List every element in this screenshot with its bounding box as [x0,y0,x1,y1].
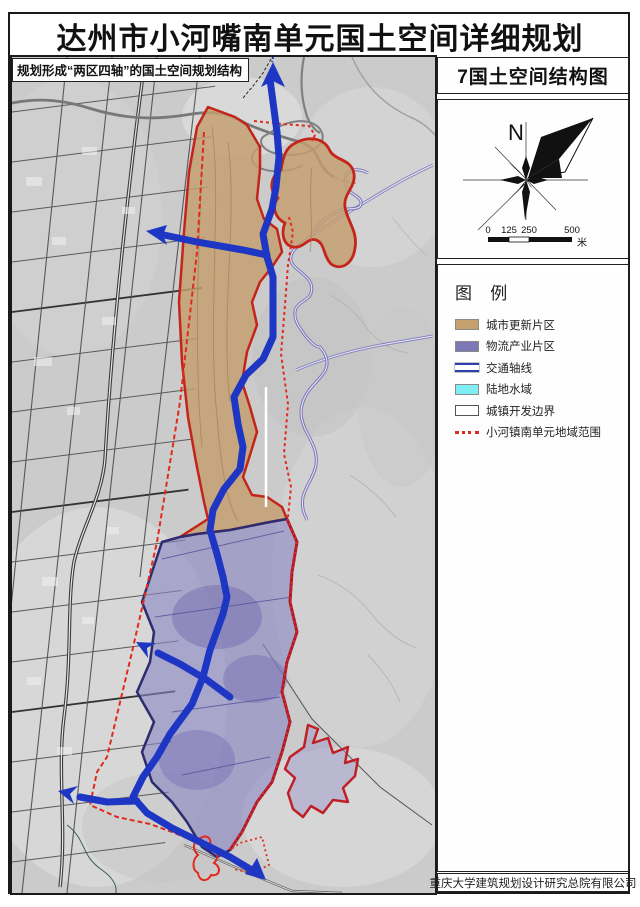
svg-text:125: 125 [501,225,517,236]
legend-label: 小河镇南单元地域范围 [486,424,601,440]
legend-item: 城市更新片区 [455,314,628,336]
map-canvas [12,57,435,893]
svg-text:250: 250 [521,225,537,236]
scale-bar: 0 125 250 500 米 [485,225,587,249]
legend-label: 城市更新片区 [486,317,555,333]
legend-label: 交通轴线 [486,360,532,376]
legend-item: 小河镇南单元地域范围 [455,422,628,444]
page-title: 达州市小河嘴南单元国土空间详细规划 [0,14,640,58]
legend-swatch-fill [455,341,479,352]
svg-text:500: 500 [564,225,580,236]
planning-map[interactable]: 规划形成“两区四轴”的国土空间规划结构 [10,55,437,895]
legend-list: 城市更新片区物流产业片区交通轴线陆地水域城镇开发边界小河镇南单元地域范围 [455,314,628,443]
map-structure-label: 规划形成“两区四轴”的国土空间规划结构 [12,58,249,82]
legend-item: 交通轴线 [455,357,628,379]
legend-item: 城镇开发边界 [455,400,628,422]
legend-swatch-dotted-line [455,431,479,434]
legend-box: 图 例 城市更新片区物流产业片区交通轴线陆地水域城镇开发边界小河镇南单元地域范围 [437,264,629,872]
legend-swatch-fill [455,384,479,395]
legend-item: 陆地水域 [455,379,628,401]
svg-text:0: 0 [485,225,490,236]
legend-label: 物流产业片区 [486,338,555,354]
legend-swatch-fill [455,319,479,330]
legend-label: 陆地水域 [486,381,532,397]
drawing-title-box: 7国土空间结构图 [437,57,629,94]
legend-title: 图 例 [455,279,628,304]
compass-north-label: N [508,120,524,145]
legend-swatch-double-line [455,363,479,372]
scale-unit: 米 [577,236,587,249]
legend-swatch-outline [455,405,479,416]
compass-and-scale: N 0 125 250 500 米 [438,100,627,257]
north-compass-icon: N [463,118,593,230]
compass-scale-box: N 0 125 250 500 米 [437,99,629,259]
credit-text: 重庆大学建筑规划设计研究总院有限公司 [430,875,637,891]
credit-box: 重庆大学建筑规划设计研究总院有限公司 [437,873,629,892]
drawing-title: 7国土空间结构图 [457,62,609,89]
legend-label: 城镇开发边界 [486,403,555,419]
legend-item: 物流产业片区 [455,336,628,358]
